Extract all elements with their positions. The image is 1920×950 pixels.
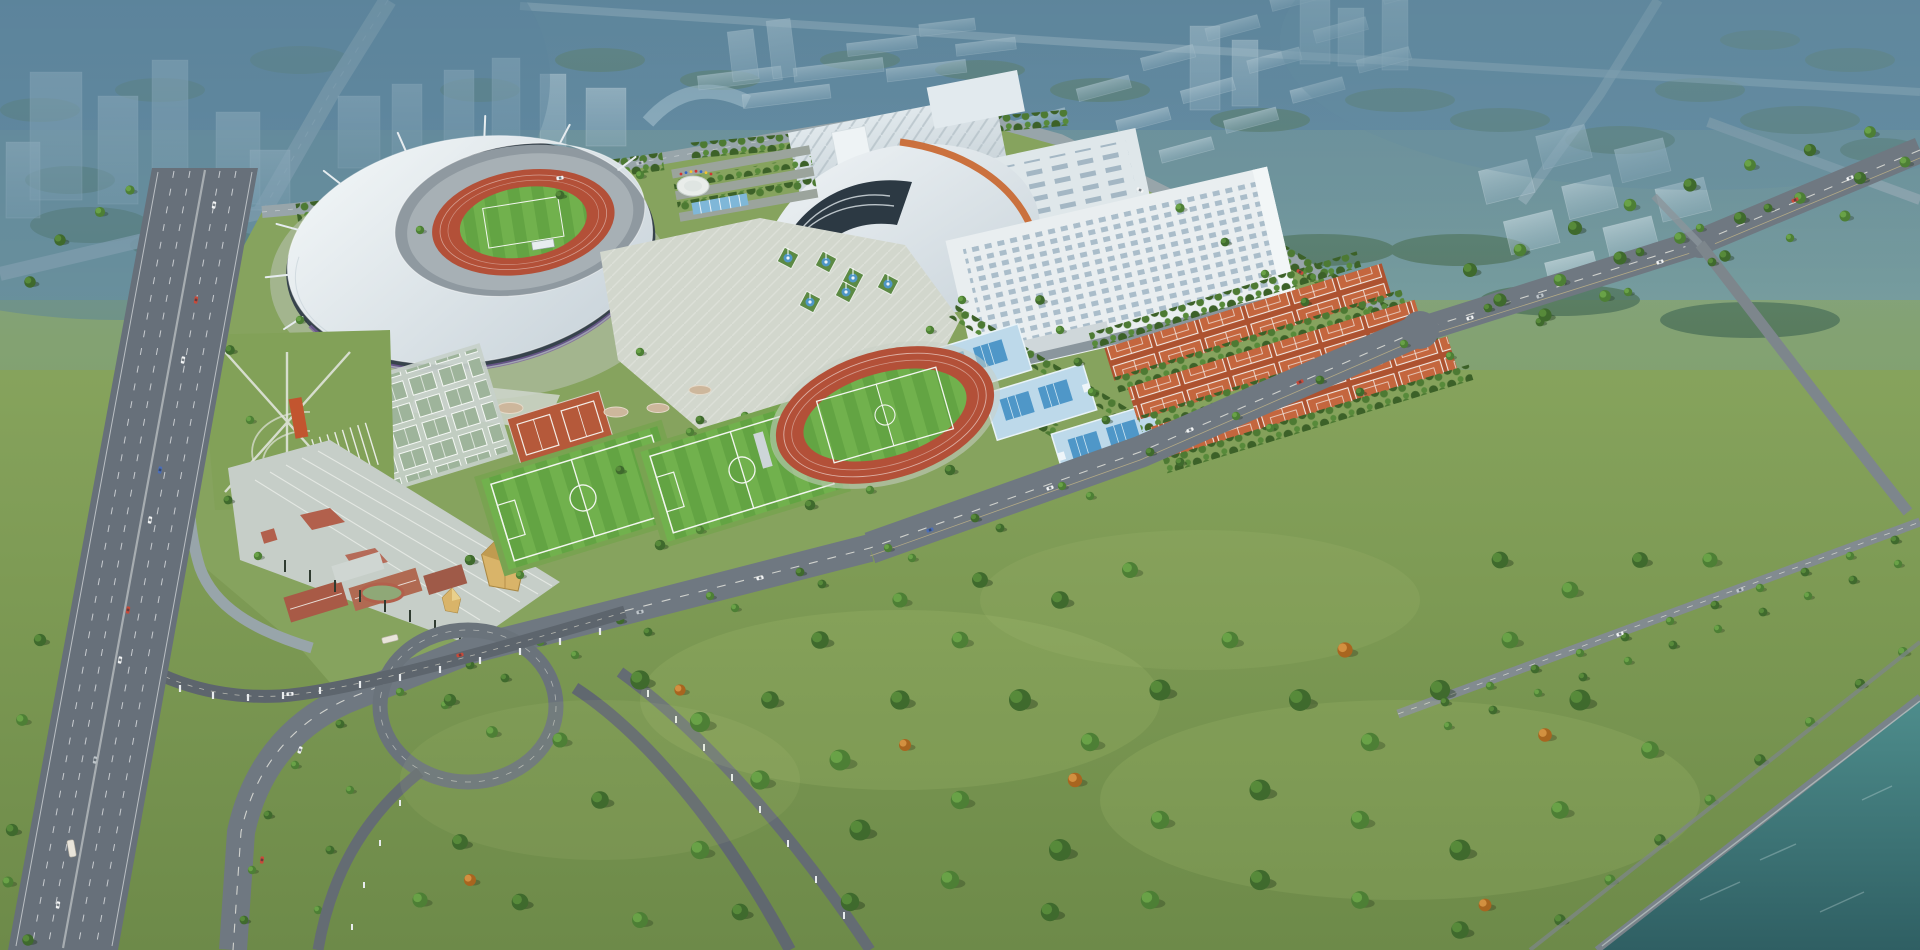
aerial-rendering <box>0 0 1920 950</box>
red-loop-path <box>361 584 403 602</box>
scene-svg <box>0 0 1920 950</box>
